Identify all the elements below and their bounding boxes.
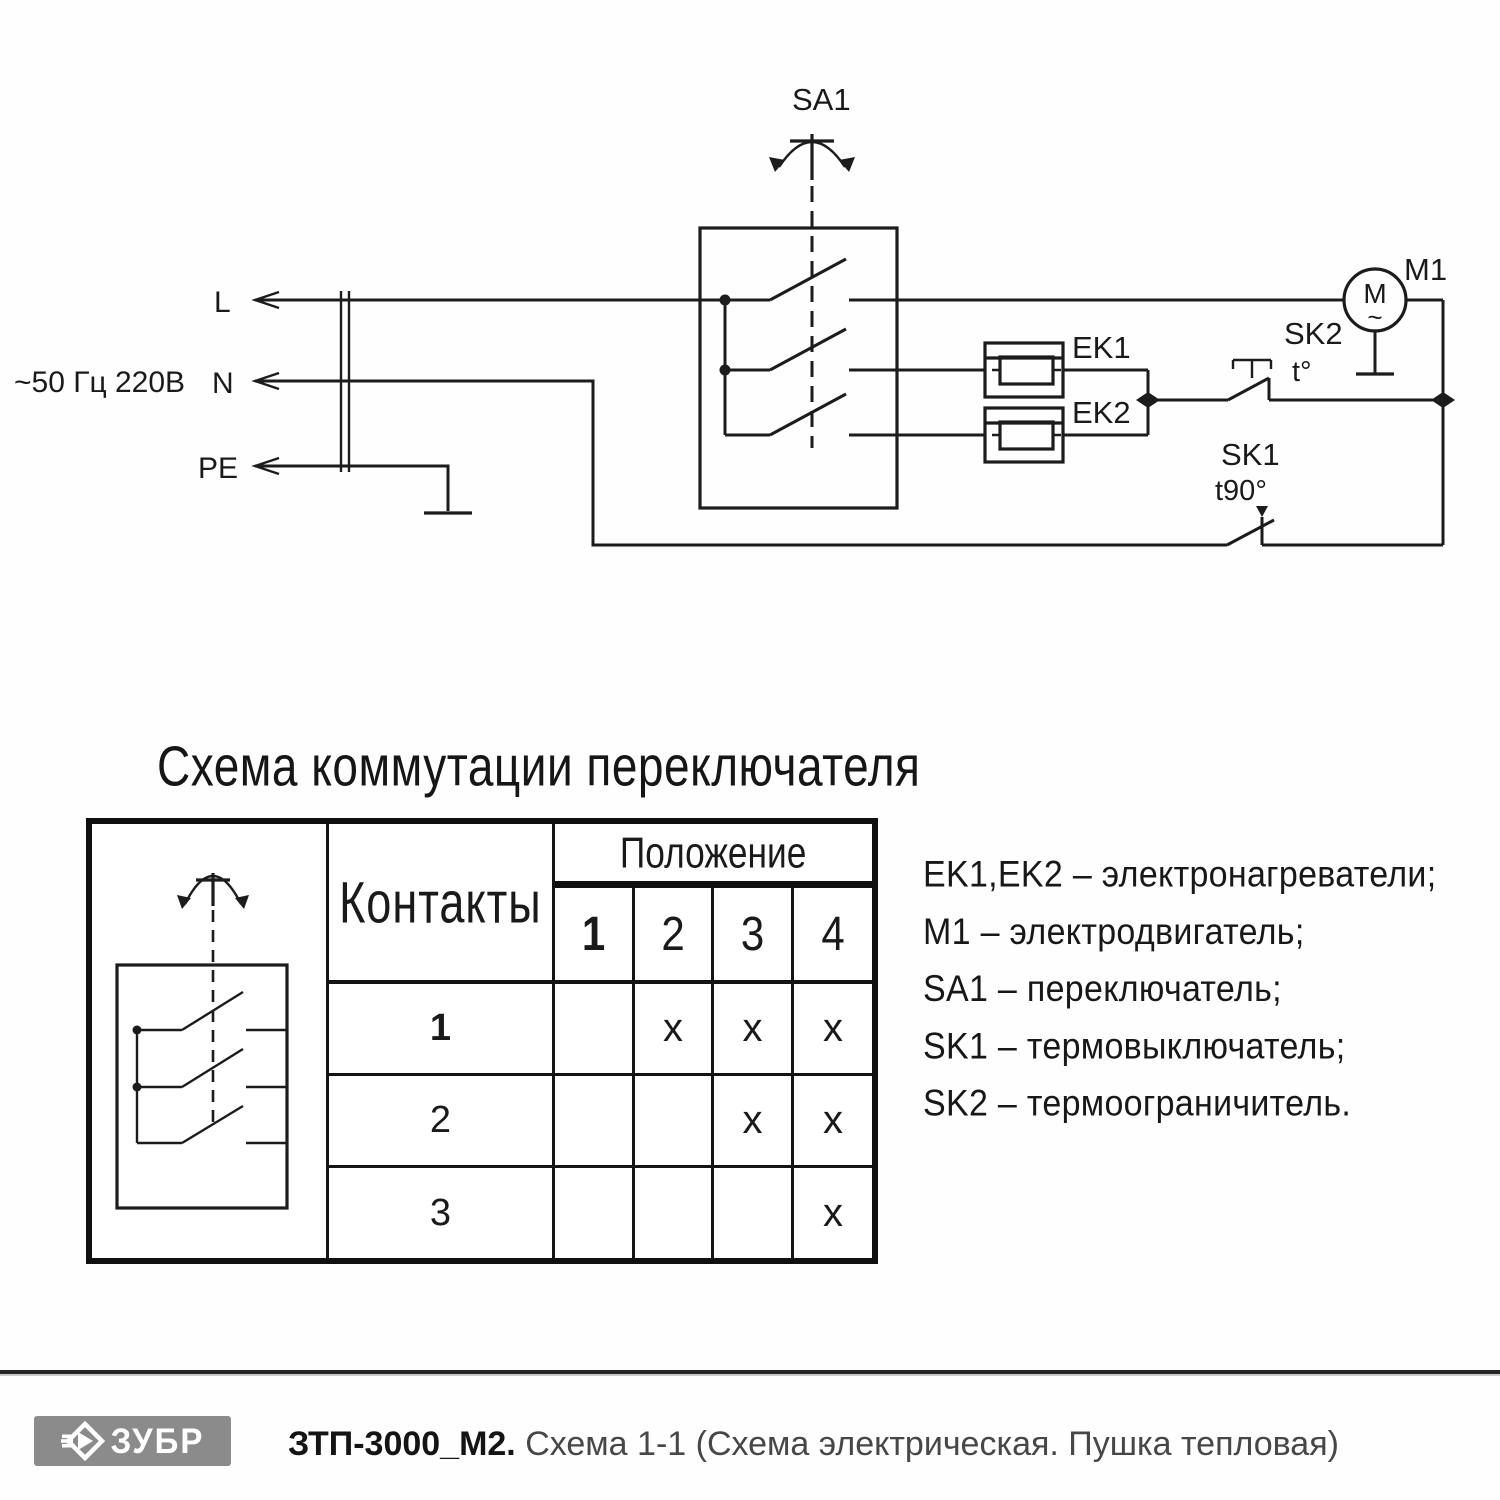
label-sk1-temp: t90° bbox=[1215, 475, 1267, 507]
mark-r2-p3: x bbox=[714, 1076, 794, 1168]
footer-title: ЗТП-3000_М2. Схема 1-1 (Схема электричес… bbox=[288, 1424, 1339, 1464]
legend-item-m1: M1 – электродвигатель; bbox=[923, 903, 1436, 960]
position-1: 1 bbox=[555, 888, 635, 984]
mark-r1-p2: x bbox=[635, 984, 714, 1076]
contacts-header-label: Контакты bbox=[339, 867, 542, 936]
sa1-arc-arrow-right bbox=[839, 157, 855, 172]
legend-item-sk2: SK2 – термоограничитель. bbox=[923, 1075, 1436, 1132]
label-sa1: SA1 bbox=[792, 82, 851, 117]
heater-ek1 bbox=[985, 343, 1063, 397]
contact-row-2-label: 2 bbox=[329, 1076, 555, 1168]
brand-name: ЗУБР bbox=[111, 1420, 205, 1461]
sa1-contact2 bbox=[725, 329, 985, 370]
circuit-diagram: L N PE ~50 Гц 220В SA1 EK1 EK2 M1 M ~ SK… bbox=[0, 0, 1500, 700]
legend-item-sa1: SA1 – переключатель; bbox=[923, 960, 1436, 1017]
table-switch-diagram bbox=[92, 824, 323, 1252]
mark-r1-p3: x bbox=[714, 984, 794, 1076]
label-pe: PE bbox=[198, 452, 238, 485]
motor-wave: ~ bbox=[1367, 302, 1382, 332]
scheme-subtitle: Схема 1-1 (Схема электрическая. Пушка те… bbox=[525, 1425, 1339, 1463]
commutation-table: Контакты Положение 1 2 3 4 1 x x x 2 x x… bbox=[86, 818, 878, 1264]
label-m1: M1 bbox=[1404, 252, 1447, 287]
label-sk1: SK1 bbox=[1221, 437, 1280, 472]
sk2-contact bbox=[1228, 360, 1443, 400]
mark-r3-p2 bbox=[635, 1168, 714, 1258]
legend-item-ek: EK1,EK2 – электронагреватели; bbox=[923, 846, 1436, 903]
sa1-contact3 bbox=[725, 394, 985, 435]
mark-r2-p4: x bbox=[794, 1076, 872, 1168]
sa1-contact1-blade bbox=[770, 259, 846, 300]
mark-r3-p3 bbox=[714, 1168, 794, 1258]
switch-table-title: Схема коммутации переключателя bbox=[157, 733, 920, 799]
contact-row-3-label: 3 bbox=[329, 1168, 555, 1258]
mark-r2-p1 bbox=[555, 1076, 635, 1168]
mini-handle bbox=[196, 873, 230, 906]
wire-pe bbox=[255, 466, 448, 511]
mark-r2-p2 bbox=[635, 1076, 714, 1168]
footer-divider-shadow bbox=[0, 1374, 1500, 1376]
label-n: N bbox=[212, 367, 234, 400]
label-sk2-temp: t° bbox=[1292, 356, 1312, 388]
label-ek2: EK2 bbox=[1072, 395, 1131, 430]
label-l: L bbox=[214, 286, 231, 319]
page: L N PE ~50 Гц 220В SA1 EK1 EK2 M1 M ~ SK… bbox=[0, 0, 1500, 1500]
table-switch-diagram-cell bbox=[92, 824, 329, 1258]
position-4: 4 bbox=[794, 888, 872, 984]
label-supply: ~50 Гц 220В bbox=[14, 366, 185, 399]
mark-r1-p1 bbox=[555, 984, 635, 1076]
label-sk2: SK2 bbox=[1284, 316, 1343, 351]
legend-item-sk1: SK1 – термовыключатель; bbox=[923, 1018, 1436, 1075]
contacts-header: Контакты bbox=[329, 824, 555, 984]
junction-right bbox=[1431, 392, 1455, 408]
position-3: 3 bbox=[714, 888, 794, 984]
sa1-arc-arrow-left bbox=[769, 157, 785, 172]
zubr-logo: ЗУБР bbox=[34, 1416, 231, 1466]
heater-ek2 bbox=[985, 408, 1063, 462]
contact-row-1-label: 1 bbox=[329, 984, 555, 1076]
label-ek1: EK1 bbox=[1072, 330, 1131, 365]
position-header: Положение bbox=[555, 824, 872, 888]
model-name: ЗТП-3000_М2. bbox=[288, 1425, 516, 1463]
mark-r1-p4: x bbox=[794, 984, 872, 1076]
mark-r3-p4: x bbox=[794, 1168, 872, 1258]
position-header-label: Положение bbox=[620, 827, 806, 878]
mark-r3-p1 bbox=[555, 1168, 635, 1258]
zubr-logo-icon bbox=[61, 1421, 105, 1461]
sa1-bus-dot-1 bbox=[720, 295, 731, 306]
position-2: 2 bbox=[635, 888, 714, 984]
sk1-contact bbox=[1227, 506, 1274, 545]
legend: EK1,EK2 – электронагреватели; M1 – элект… bbox=[923, 846, 1436, 1132]
